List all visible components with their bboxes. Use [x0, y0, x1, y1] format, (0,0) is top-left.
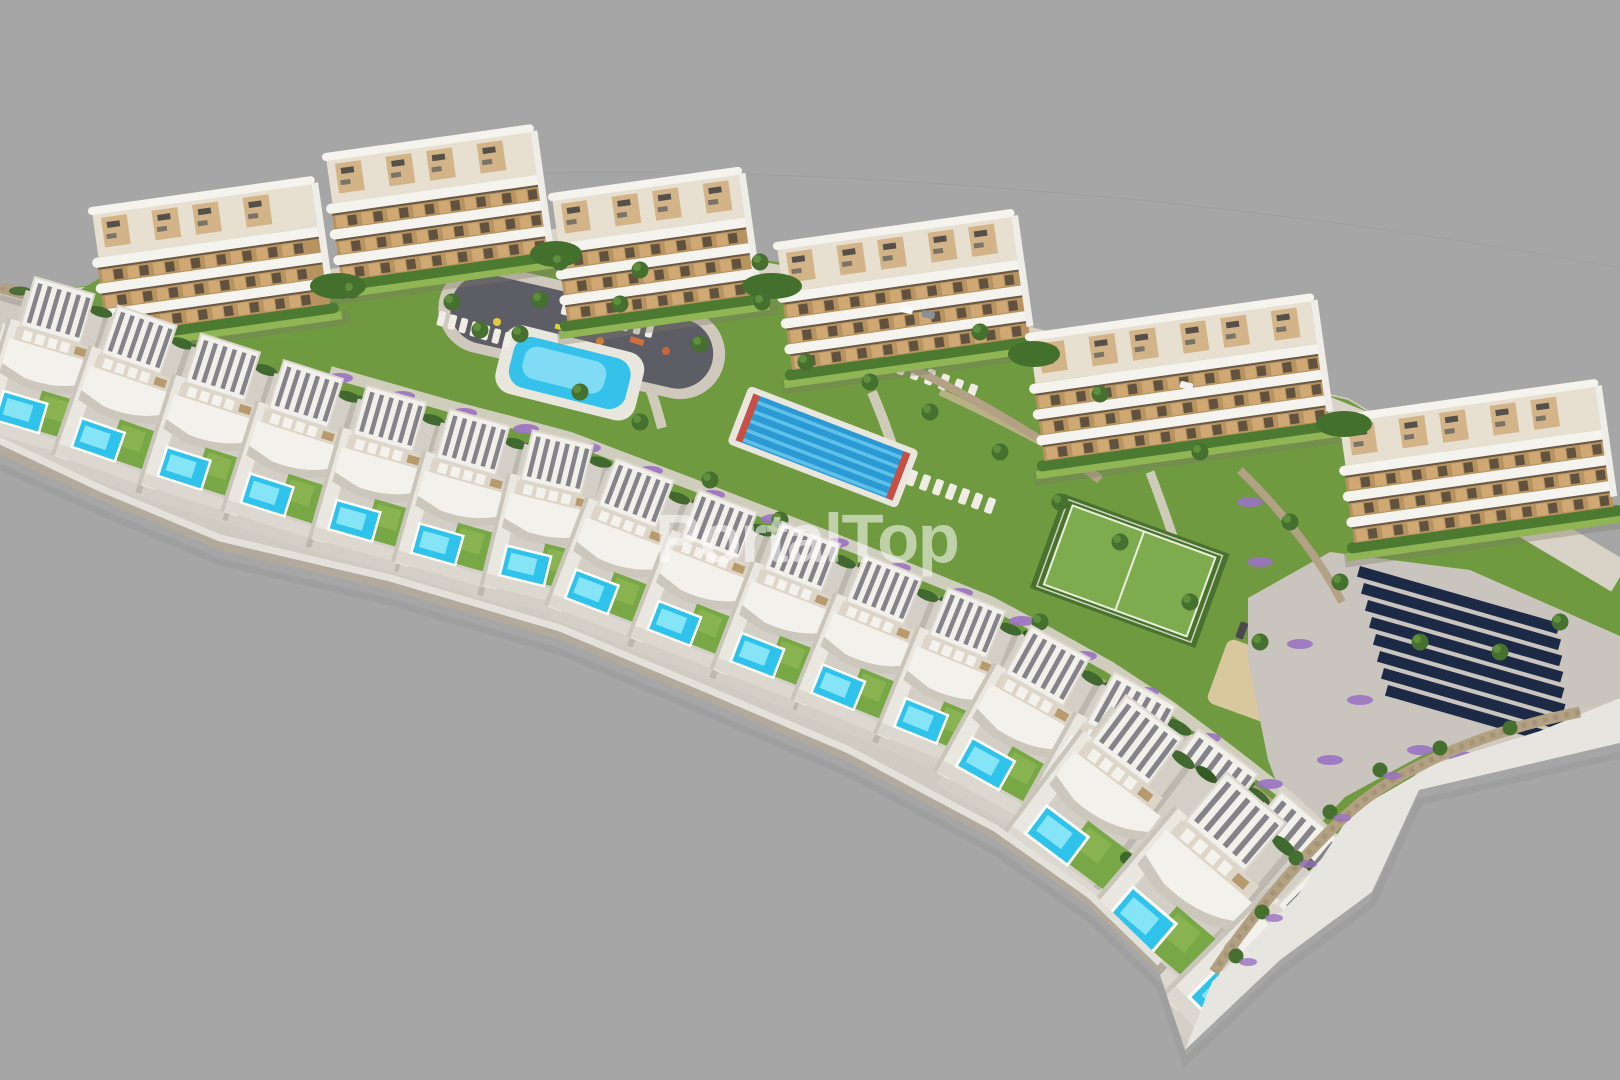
svg-text:PortalTop: PortalTop [655, 500, 958, 577]
